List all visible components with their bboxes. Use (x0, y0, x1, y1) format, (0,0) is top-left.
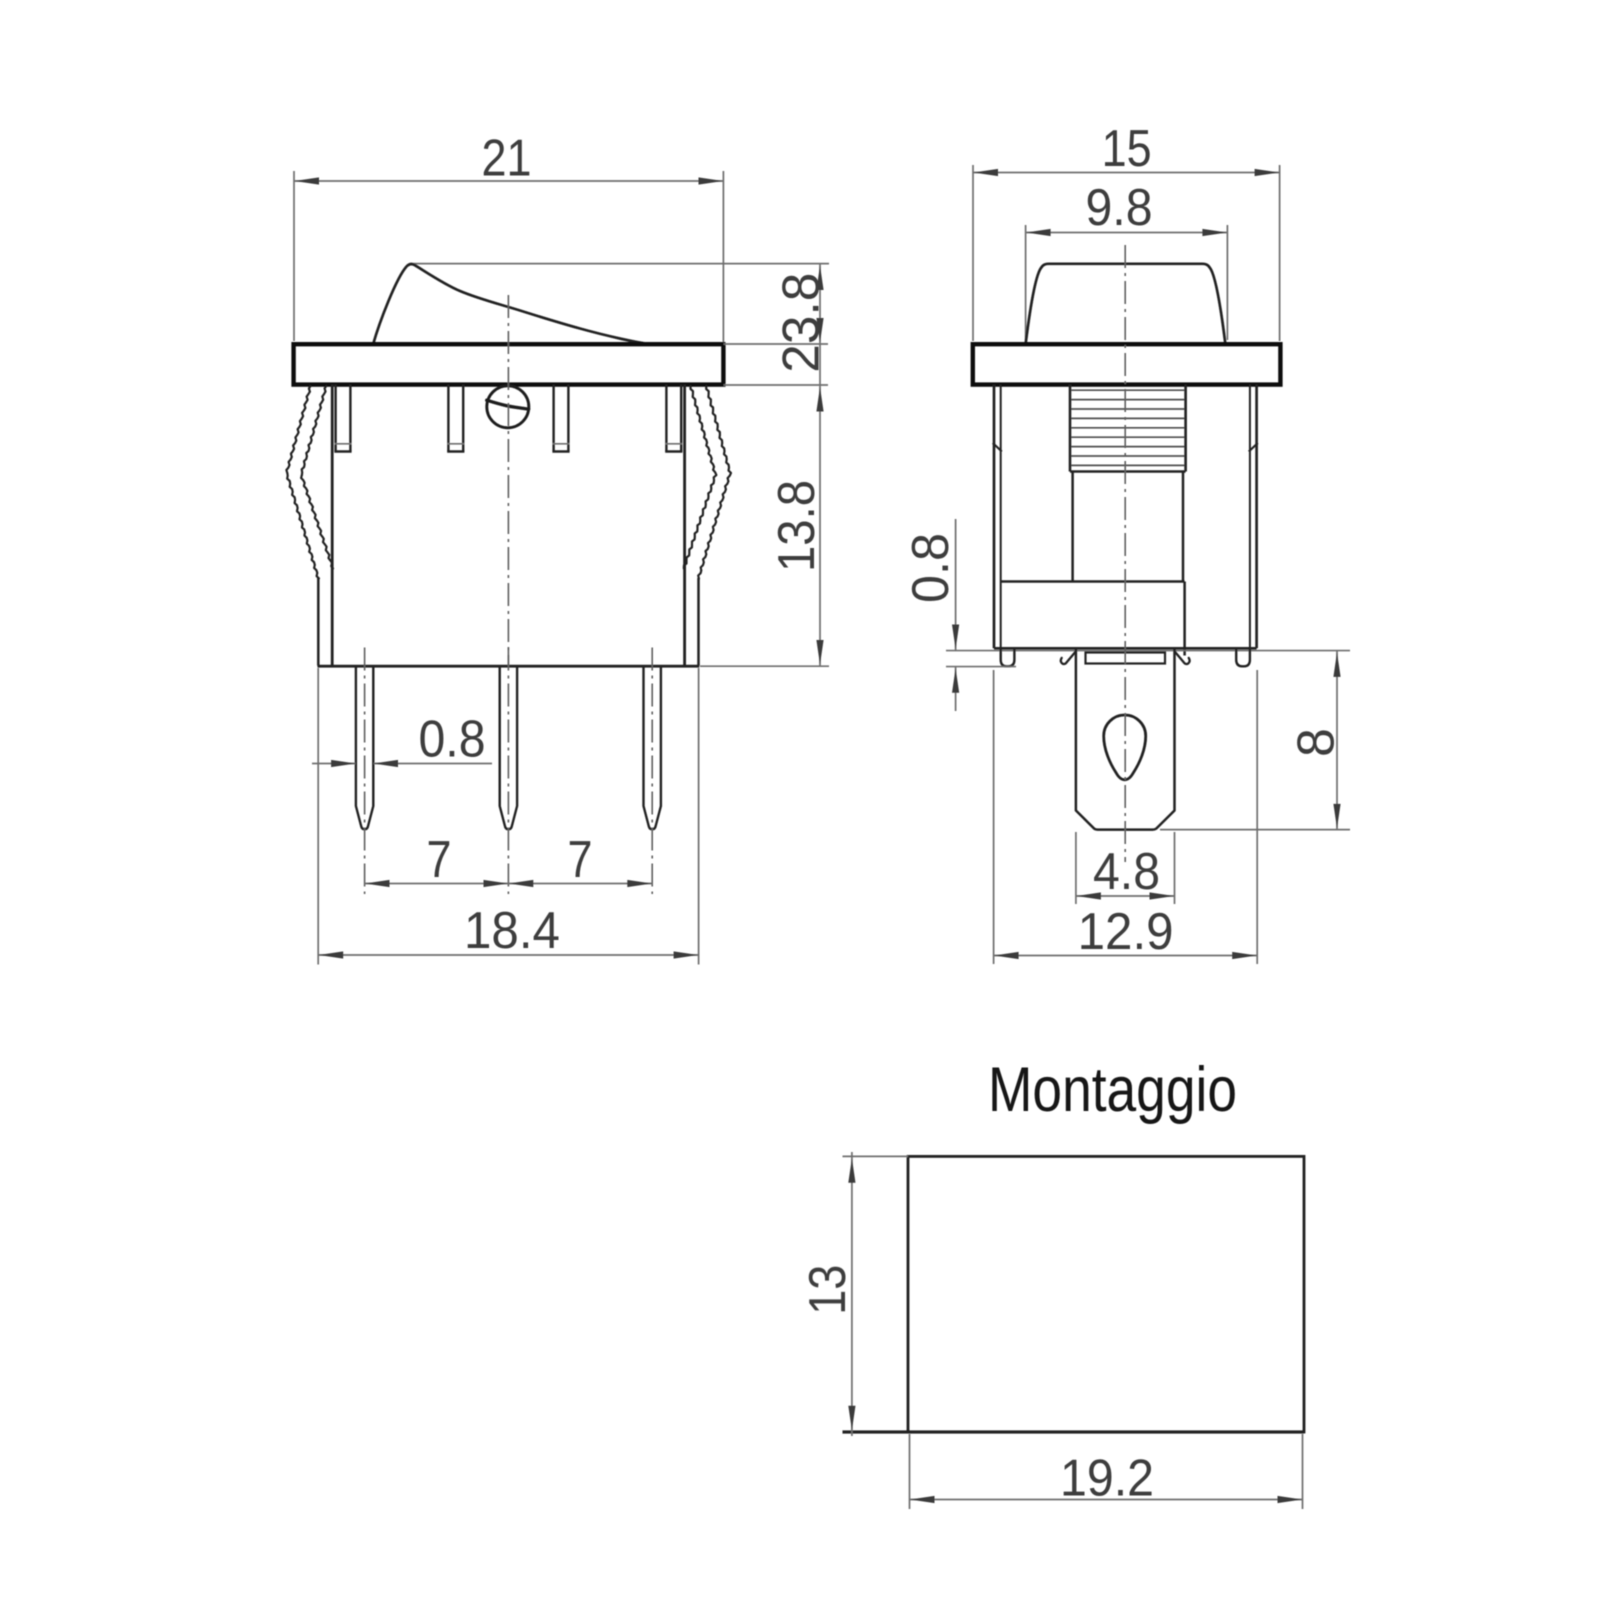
svg-text:15: 15 (1102, 120, 1152, 178)
svg-text:7: 7 (568, 831, 593, 889)
svg-text:23.8: 23.8 (773, 273, 831, 373)
svg-text:4.8: 4.8 (1093, 843, 1160, 901)
svg-text:9.8: 9.8 (1086, 179, 1153, 237)
svg-text:18.4: 18.4 (464, 902, 560, 960)
svg-text:21: 21 (482, 130, 532, 188)
svg-text:0.8: 0.8 (419, 711, 486, 769)
svg-text:7: 7 (427, 831, 452, 889)
svg-text:12.9: 12.9 (1078, 903, 1174, 961)
svg-text:19.2: 19.2 (1060, 1450, 1154, 1508)
svg-text:8: 8 (1288, 728, 1346, 757)
svg-text:Montaggio: Montaggio (988, 1055, 1237, 1125)
svg-text:13: 13 (799, 1265, 857, 1315)
svg-text:13.8: 13.8 (768, 480, 826, 572)
svg-text:0.8: 0.8 (902, 533, 960, 603)
